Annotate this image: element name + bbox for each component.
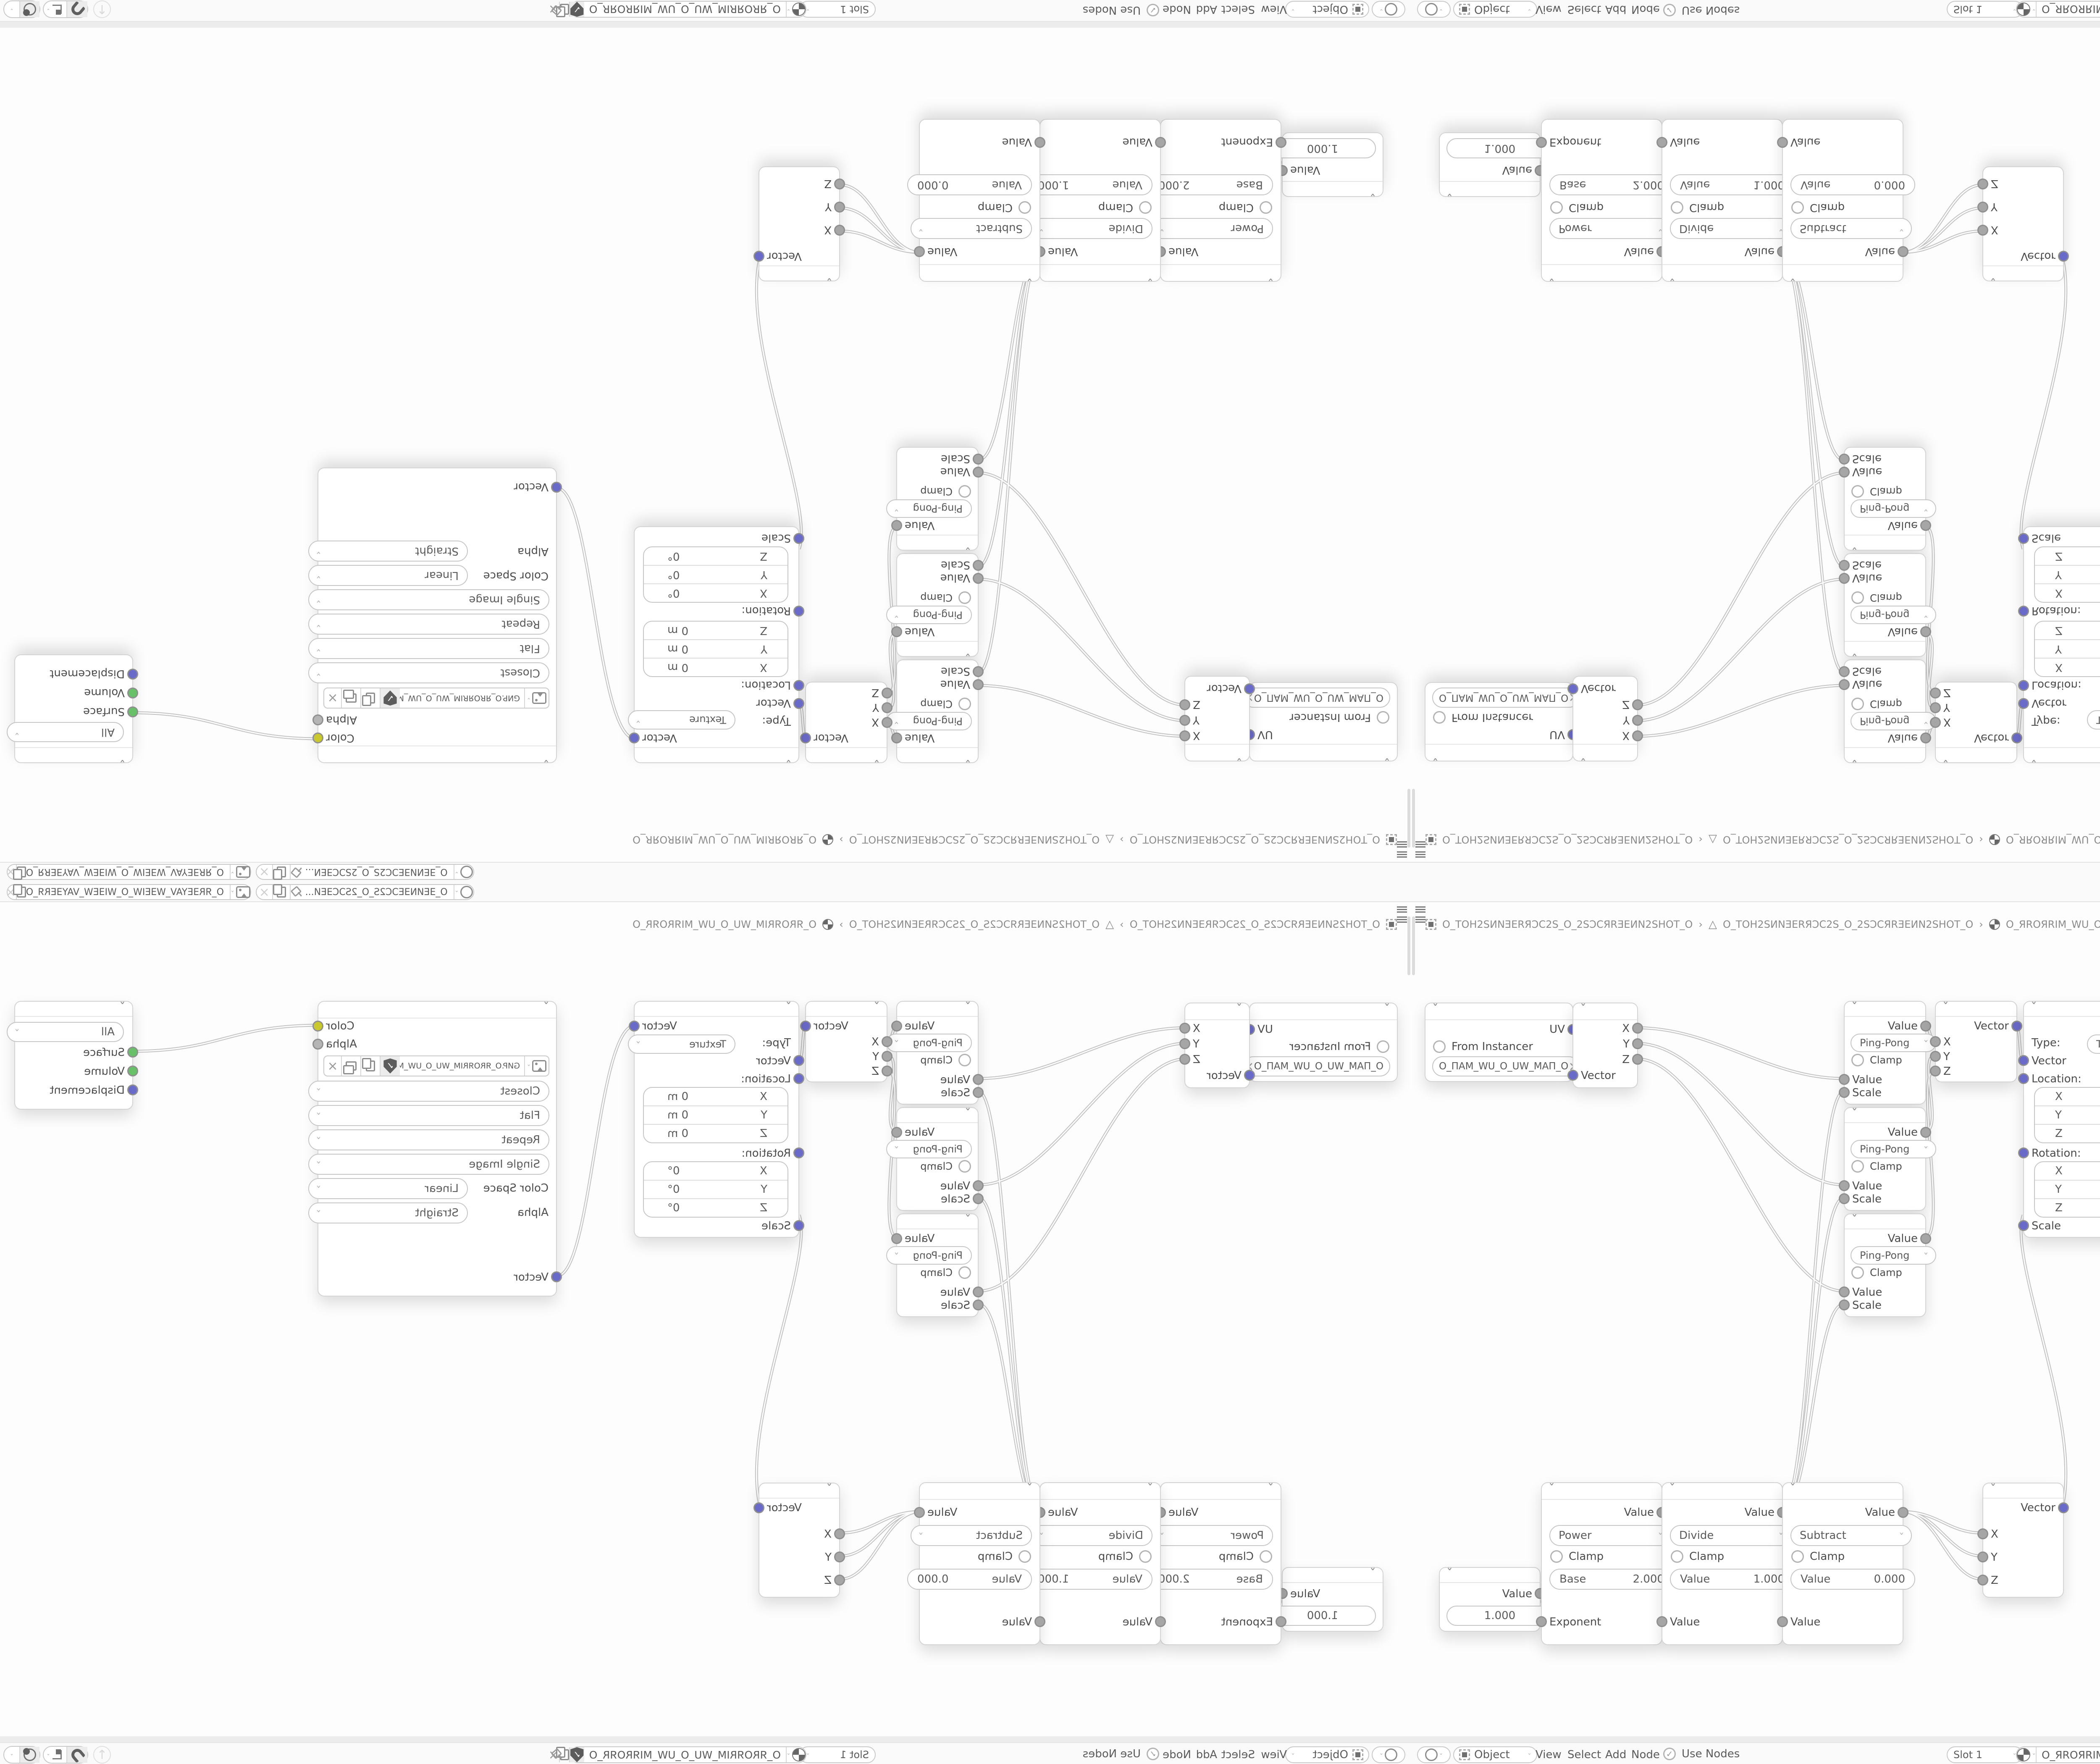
node-material-output[interactable]: ˇ Allˇ Surface Volume Displacement xyxy=(14,654,133,763)
y-input-socket[interactable] xyxy=(1977,202,1988,213)
node-editor-canvas[interactable]: O_TOH2SИNƎERЯƆC2S_O_2SƆCЯRƎEИN2SHOT_O › … xyxy=(1411,28,2100,862)
collapse-chevron[interactable]: ˇ xyxy=(874,754,880,758)
node-math-pingpong-3[interactable]: ˇ Value Ping-Pongˇ Clamp Value Scale xyxy=(1844,1213,1926,1317)
scale-input-socket[interactable] xyxy=(1839,666,1850,677)
collapse-chevron[interactable]: ˇ xyxy=(1432,752,1438,756)
view-layer-selector[interactable]: ˇ O_ЯRƎEYAV_WƎEIW_O_WIƎEW_VAYƎERЯ_O × xyxy=(7,884,251,900)
node-math-subtract[interactable]: ˇ Value Subtractˇ Clamp Value0.000 Value xyxy=(919,119,1040,282)
y-input-socket[interactable] xyxy=(882,1051,892,1062)
projection-dropdown[interactable]: Flatˇ xyxy=(308,638,549,659)
snap-controls[interactable]: ˇ xyxy=(43,0,88,18)
node-image-texture[interactable]: ˇ Color Alpha ˇ GИP.O_ЯROЯRIM_WU_O_UW_MI… xyxy=(318,467,557,763)
value-field[interactable]: Value0.000 xyxy=(1790,1569,1915,1590)
rotation-input-socket[interactable] xyxy=(793,606,804,617)
collapse-chevron[interactable]: ˇ xyxy=(1549,1487,1555,1491)
node-uv-map[interactable]: ˇ UV From Instancer O_ПAM_WU_O_UW_MAП_O … xyxy=(1425,682,1573,761)
node-combine-xyz-2[interactable]: ˇ Vector X Y Z xyxy=(1982,166,2064,281)
collapse-chevron[interactable]: ˇ xyxy=(1990,1488,1996,1492)
operation-dropdown[interactable]: Subtractˇ xyxy=(911,1525,1032,1546)
material-selector[interactable]: ˇ O_ЯROЯRIM_WU_O_UW_MIЯROЯR_O ✓ × xyxy=(2016,1,2100,18)
node-math-divide[interactable]: ˇ Value Divideˇ Clamp Value1.000 Value xyxy=(1662,119,1783,282)
snap-target-icon[interactable]: ˇ xyxy=(44,1747,66,1763)
go-to-parent-button[interactable]: ↑ xyxy=(93,0,111,18)
unpack-icon[interactable] xyxy=(341,688,360,708)
operation-dropdown[interactable]: Ping-Pongˇ xyxy=(1851,1034,1936,1052)
interpolation-dropdown[interactable]: Closestˇ xyxy=(308,1081,549,1102)
collapse-chevron[interactable]: ˇ xyxy=(1669,273,1675,277)
node-math-pingpong-1[interactable]: ˇ Value Ping-Pongˇ Clamp Value Scale xyxy=(1844,1001,1926,1105)
pivot-icon[interactable] xyxy=(19,1747,39,1763)
node-combine-xyz-2[interactable]: ˇ Vector X Y Z xyxy=(759,1483,840,1598)
z-input-socket[interactable] xyxy=(882,688,892,698)
value-input-socket[interactable] xyxy=(1656,137,1667,148)
clamp-checkbox[interactable]: Clamp xyxy=(1851,1266,1902,1279)
node-math-pingpong-1[interactable]: ˇ Value Ping-Pongˇ Clamp Value Scale xyxy=(1844,659,1926,763)
menu-node[interactable]: Node xyxy=(1163,3,1191,16)
location-input-socket[interactable] xyxy=(2018,1073,2029,1084)
vector-output-socket[interactable] xyxy=(2011,1021,2022,1032)
alpha-output-socket[interactable] xyxy=(312,1039,323,1050)
menu-select[interactable]: Select xyxy=(1567,1748,1601,1761)
node-math-pingpong-3[interactable]: ˇ Value Ping-Pongˇ Clamp Value Scale xyxy=(896,1213,979,1317)
clamp-checkbox[interactable]: Clamp xyxy=(920,1160,971,1173)
value-input-socket[interactable] xyxy=(1777,137,1788,148)
clamp-checkbox[interactable]: Clamp xyxy=(1098,1550,1152,1563)
node-math-subtract[interactable]: ˇ Value Subtractˇ Clamp Value0.000 Value xyxy=(919,1482,1040,1645)
scale-input-socket[interactable] xyxy=(973,1299,984,1310)
menu-node[interactable]: Node xyxy=(1163,1748,1191,1761)
collapse-chevron[interactable]: ˇ xyxy=(1268,1487,1274,1491)
node-mapping[interactable]: ˇ Vector Type: Textureˇ Vector Location:… xyxy=(634,1001,799,1238)
collapse-chevron[interactable]: ˇ xyxy=(1026,1487,1033,1491)
node-separate-xyz[interactable]: ˇ X Y Z Vector xyxy=(1572,1003,1638,1088)
snap-magnet-icon[interactable] xyxy=(66,1,87,17)
clamp-checkbox[interactable]: Clamp xyxy=(1851,698,1902,710)
vector-output-socket[interactable] xyxy=(629,732,640,743)
operation-dropdown[interactable]: Subtractˇ xyxy=(1790,1525,1912,1546)
from-instancer-checkbox[interactable]: From Instancer xyxy=(1289,1040,1389,1053)
copy-icon[interactable] xyxy=(16,865,26,879)
collapse-chevron[interactable]: ˇ xyxy=(1370,1572,1376,1576)
collapse-chevron[interactable]: ˇ xyxy=(965,1112,971,1116)
go-to-parent-button[interactable]: ↑ xyxy=(93,1746,111,1764)
image-icon[interactable]: ˇ xyxy=(230,865,250,879)
vector-input-socket[interactable] xyxy=(1567,1070,1578,1081)
y-input-socket[interactable] xyxy=(1977,1551,1988,1562)
x-input-socket[interactable] xyxy=(882,717,892,728)
value-output-socket[interactable] xyxy=(1920,732,1931,743)
value-output-socket[interactable] xyxy=(891,520,902,531)
rotation-fields[interactable]: X0° Y0° Z0° xyxy=(2034,546,2100,603)
collapse-chevron[interactable]: ˇ xyxy=(1236,752,1242,756)
collapse-chevron[interactable]: ˇ xyxy=(1942,1006,1949,1010)
collapse-chevron[interactable]: ˇ xyxy=(1549,273,1555,277)
shader-type-dropdown[interactable]: Object ˇ xyxy=(1453,1746,1537,1763)
x-input-socket[interactable] xyxy=(834,1528,845,1539)
clamp-checkbox[interactable]: Clamp xyxy=(1550,1550,1604,1563)
operation-dropdown[interactable]: Ping-Pongˇ xyxy=(1851,1140,1936,1158)
volume-input-socket[interactable] xyxy=(127,688,138,698)
value-output-socket[interactable] xyxy=(914,1507,925,1518)
menu-add[interactable]: Add xyxy=(1605,3,1626,16)
slot-dropdown[interactable]: Slot 1ˇ xyxy=(799,1,876,18)
from-instancer-checkbox[interactable]: From Instancer xyxy=(1289,711,1389,724)
operation-dropdown[interactable]: Ping-Pongˇ xyxy=(1851,712,1936,730)
collapse-chevron[interactable]: ˇ xyxy=(785,1006,792,1010)
close-icon[interactable]: × xyxy=(324,688,341,708)
value-output-socket[interactable] xyxy=(891,1127,902,1138)
clamp-checkbox[interactable]: Clamp xyxy=(1851,1054,1902,1066)
scale-input-socket[interactable] xyxy=(793,533,804,544)
clamp-checkbox[interactable]: Clamp xyxy=(1791,201,1845,214)
uv-map-select[interactable]: O_ПAM_WU_O_UW_MAП_O × xyxy=(1432,688,1579,708)
menu-select[interactable]: Select xyxy=(1221,3,1255,16)
value-output-socket[interactable] xyxy=(891,732,902,743)
node-math-pingpong-1[interactable]: ˇ Value Ping-Pongˇ Clamp Value Scale xyxy=(896,659,979,763)
close-icon[interactable]: × xyxy=(257,885,272,899)
snap-controls[interactable]: ˇ xyxy=(43,1746,88,1764)
rotation-fields[interactable]: X0° Y0° Z0° xyxy=(2034,1161,2100,1218)
fake-user-shield-icon[interactable]: ✓ xyxy=(380,1056,400,1076)
operation-dropdown[interactable]: Ping-Pongˇ xyxy=(1851,499,1936,518)
collapse-chevron[interactable]: ˇ xyxy=(1268,273,1274,277)
node-separate-xyz[interactable]: ˇ X Y Z Vector xyxy=(1572,676,1638,761)
x-input-socket[interactable] xyxy=(1930,1036,1941,1047)
copy-icon[interactable] xyxy=(16,885,26,899)
value-input-socket[interactable] xyxy=(1839,1286,1850,1297)
overlay-dropdown[interactable]: ˇ xyxy=(3,1746,40,1764)
clamp-checkbox[interactable]: Clamp xyxy=(1098,201,1152,214)
menu-select[interactable]: Select xyxy=(1221,1748,1255,1761)
y-output-socket[interactable] xyxy=(1179,1038,1190,1049)
y-input-socket[interactable] xyxy=(882,702,892,713)
new-copy-icon[interactable] xyxy=(360,688,380,708)
node-mapping[interactable]: ˇ Vector Type: Textureˇ Vector Location:… xyxy=(2023,526,2100,763)
scene-icon[interactable]: ˇ xyxy=(454,885,473,899)
view-layer-name[interactable]: O_ЯRƎEYAV_WƎEIW_O_WIƎEW_VAYƎERЯ_O xyxy=(26,887,230,898)
node-math-pingpong-2[interactable]: ˇ Value Ping-Pongˇ Clamp Value Scale xyxy=(1844,553,1926,657)
menu-view[interactable]: View xyxy=(1536,3,1562,16)
operation-dropdown[interactable]: Ping-Pongˇ xyxy=(886,606,972,624)
collapse-chevron[interactable]: ˇ xyxy=(965,648,971,652)
collapse-chevron[interactable]: ˇ xyxy=(1790,1487,1796,1491)
value-input-socket[interactable] xyxy=(973,573,984,584)
location-fields[interactable]: X0 m Y0 m Z0 m xyxy=(643,1087,788,1143)
node-editor-canvas[interactable]: O_TOH2SИNƎERЯƆC2S_O_2SƆCЯRƎEИN2SHOT_O › … xyxy=(0,28,1411,862)
mapping-type-dropdown[interactable]: Textureˇ xyxy=(628,1034,735,1054)
operation-dropdown[interactable]: Ping-Pongˇ xyxy=(886,499,972,518)
scale-input-socket[interactable] xyxy=(2018,533,2029,544)
alpha-output-socket[interactable] xyxy=(312,714,323,725)
y-output-socket[interactable] xyxy=(1632,1038,1643,1049)
node-math-subtract[interactable]: ˇ Value Subtractˇ Clamp Value0.000 Value xyxy=(1782,119,1903,282)
value-output-socket[interactable] xyxy=(891,626,902,637)
scene-selector[interactable]: ˇ O_ƎEИNƎEƆC2S_O_2SƆCƎEИ... × xyxy=(256,864,474,880)
node-combine-xyz-2[interactable]: ˇ Vector X Y Z xyxy=(759,166,840,281)
value-output-socket[interactable] xyxy=(1898,1507,1908,1518)
shader-type-dropdown[interactable]: Object ˇ xyxy=(1285,1,1369,18)
collapse-chevron[interactable]: ˇ xyxy=(543,754,549,758)
value-input-socket[interactable] xyxy=(1839,467,1850,478)
menu-node[interactable]: Node xyxy=(1631,1748,1660,1761)
value-input-socket[interactable] xyxy=(1839,1180,1850,1191)
collapse-chevron[interactable]: ˇ xyxy=(1384,752,1390,756)
node-math-pingpong-1[interactable]: ˇ Value Ping-Pongˇ Clamp Value Scale xyxy=(896,1001,979,1105)
value-output-socket[interactable] xyxy=(914,246,925,257)
operation-dropdown[interactable]: Divideˇ xyxy=(1670,1525,1791,1546)
editor-type-button[interactable]: ˇ xyxy=(1372,1746,1405,1763)
node-value[interactable]: ˇ Value 1.000 xyxy=(1282,132,1383,197)
value-output-socket[interactable] xyxy=(891,1233,902,1244)
y-input-socket[interactable] xyxy=(1930,702,1941,713)
value-field[interactable]: Value1.000 xyxy=(1670,1569,1795,1590)
collapse-chevron[interactable]: ˇ xyxy=(1446,1572,1453,1576)
vector-input-socket[interactable] xyxy=(1244,1070,1255,1081)
scale-input-socket[interactable] xyxy=(2018,1220,2029,1231)
extension-dropdown[interactable]: Repeatˇ xyxy=(308,614,549,635)
node-separate-xyz[interactable]: ˇ X Y Z Vector xyxy=(1184,676,1250,761)
material-selector[interactable]: ˇ O_ЯROЯRIM_WU_O_UW_MIЯROЯR_O ✓ × xyxy=(570,1,806,18)
clamp-checkbox[interactable]: Clamp xyxy=(978,1550,1031,1563)
collapse-chevron[interactable]: ˇ xyxy=(2031,1006,2037,1010)
location-fields[interactable]: X0 m Y0 m Z0 m xyxy=(643,621,788,677)
value-field[interactable]: Value0.000 xyxy=(907,174,1032,195)
collapse-chevron[interactable]: ˇ xyxy=(119,754,126,758)
collapse-chevron[interactable]: ˇ xyxy=(1580,1008,1586,1012)
value-input-socket[interactable] xyxy=(1034,137,1045,148)
rotation-fields[interactable]: X0° Y0° Z0° xyxy=(643,1161,788,1218)
image-icon[interactable]: ˇ xyxy=(524,1056,549,1076)
scale-input-socket[interactable] xyxy=(973,1193,984,1204)
y-output-socket[interactable] xyxy=(1179,715,1190,726)
node-math-power[interactable]: ˇ Value Powerˇ Clamp Base2.000 Exponent xyxy=(1541,1482,1662,1645)
exponent-input-socket[interactable] xyxy=(1276,137,1286,148)
menu-view[interactable]: View xyxy=(1536,1748,1562,1761)
node-math-pingpong-2[interactable]: ˇ Value Ping-Pongˇ Clamp Value Scale xyxy=(1844,1107,1926,1211)
collapse-chevron[interactable]: ˇ xyxy=(1942,754,1949,758)
node-editor-canvas[interactable]: O_TOH2SИNƎERЯƆC2S_O_2SƆCЯRƎEИN2SHOT_O › … xyxy=(0,902,1411,1736)
z-input-socket[interactable] xyxy=(834,178,845,189)
collapse-chevron[interactable]: ˇ xyxy=(1851,541,1858,546)
scale-input-socket[interactable] xyxy=(973,666,984,677)
vector-output-socket[interactable] xyxy=(629,1021,640,1032)
scale-input-socket[interactable] xyxy=(1839,560,1850,571)
collapse-chevron[interactable]: ˇ xyxy=(543,1006,549,1010)
node-editor-canvas[interactable]: O_TOH2SИNƎERЯƆC2S_O_2SƆCЯRƎEИN2SHOT_O › … xyxy=(1411,902,2100,1736)
x-input-socket[interactable] xyxy=(1977,1528,1988,1539)
node-image-texture[interactable]: ˇ Color Alpha ˇ GИP.O_ЯROЯRIM_WU_O_UW_MI… xyxy=(318,1001,557,1297)
collapse-chevron[interactable]: ˇ xyxy=(1384,1008,1390,1012)
x-input-socket[interactable] xyxy=(1977,225,1988,236)
node-math-power[interactable]: ˇ Value Powerˇ Clamp Base2.000 Exponent xyxy=(1160,119,1281,282)
rotation-input-socket[interactable] xyxy=(793,1147,804,1158)
x-input-socket[interactable] xyxy=(1930,717,1941,728)
projection-dropdown[interactable]: Flatˇ xyxy=(308,1105,549,1126)
extension-dropdown[interactable]: Repeatˇ xyxy=(308,1129,549,1150)
menu-view[interactable]: View xyxy=(1261,3,1287,16)
clamp-checkbox[interactable]: Clamp xyxy=(1671,201,1724,214)
from-instancer-checkbox[interactable]: From Instancer xyxy=(1433,711,1533,724)
z-output-socket[interactable] xyxy=(1179,699,1190,710)
operation-dropdown[interactable]: Ping-Pongˇ xyxy=(1851,1246,1936,1265)
z-input-socket[interactable] xyxy=(1977,178,1988,189)
node-math-power[interactable]: ˇ Value Powerˇ Clamp Base2.000 Exponent xyxy=(1160,1482,1281,1645)
clamp-checkbox[interactable]: Clamp xyxy=(1671,1550,1724,1563)
use-nodes-checkbox[interactable]: ✓Use Nodes xyxy=(1663,1748,1740,1760)
uv-map-select[interactable]: O_ПAM_WU_O_UW_MAП_O × xyxy=(1432,1056,1579,1076)
y-output-socket[interactable] xyxy=(1632,715,1643,726)
material-icon[interactable]: ˇ xyxy=(2017,1747,2037,1762)
overlay-dropdown[interactable]: ˇ xyxy=(3,0,40,18)
value-output-socket[interactable] xyxy=(1920,1233,1931,1244)
operation-dropdown[interactable]: Powerˇ xyxy=(1549,1525,1671,1546)
menu-view[interactable]: View xyxy=(1261,1748,1287,1761)
rotation-fields[interactable]: X0° Y0° Z0° xyxy=(643,546,788,603)
collapse-chevron[interactable]: ˇ xyxy=(1236,1008,1242,1012)
node-math-power[interactable]: ˇ Value Powerˇ Clamp Base2.000 Exponent xyxy=(1541,119,1662,282)
x-input-socket[interactable] xyxy=(882,1036,892,1047)
scene-icon[interactable]: ˇ xyxy=(454,865,473,879)
clamp-checkbox[interactable]: Clamp xyxy=(1219,1550,1272,1563)
image-icon[interactable]: ˇ xyxy=(230,885,250,899)
rotation-input-socket[interactable] xyxy=(2018,1147,2029,1158)
operation-dropdown[interactable]: Ping-Pongˇ xyxy=(886,1034,972,1052)
view-layer-name[interactable]: O_ЯRƎEYAV_WƎEIW_O_WIƎEW_VAYƎERЯ_O xyxy=(26,867,230,877)
value-field[interactable]: Value0.000 xyxy=(1790,174,1915,195)
menu-select[interactable]: Select xyxy=(1567,3,1601,16)
z-input-socket[interactable] xyxy=(1930,688,1941,698)
pin-icon[interactable] xyxy=(290,865,305,879)
collapse-chevron[interactable]: ˇ xyxy=(965,754,971,758)
operation-dropdown[interactable]: Powerˇ xyxy=(1152,1525,1273,1546)
operation-dropdown[interactable]: Powerˇ xyxy=(1549,218,1671,239)
z-output-socket[interactable] xyxy=(1632,1054,1643,1065)
from-instancer-checkbox[interactable]: From Instancer xyxy=(1433,1040,1533,1053)
value-output-socket[interactable] xyxy=(1920,1021,1931,1032)
operation-dropdown[interactable]: Ping-Pongˇ xyxy=(886,712,972,730)
horizontal-scrollbar[interactable] xyxy=(0,1736,1411,1742)
operation-dropdown[interactable]: Ping-Pongˇ xyxy=(886,1140,972,1158)
value-input-socket[interactable] xyxy=(1777,1616,1788,1627)
surface-input-socket[interactable] xyxy=(127,706,138,717)
value-input-socket[interactable] xyxy=(973,1286,984,1297)
target-dropdown[interactable]: Allˇ xyxy=(7,722,124,742)
z-output-socket[interactable] xyxy=(1632,699,1643,710)
value-output-socket[interactable] xyxy=(1920,1127,1931,1138)
node-math-pingpong-3[interactable]: ˇ Value Ping-Pongˇ Clamp Value Scale xyxy=(896,447,979,551)
collapse-chevron[interactable]: ˇ xyxy=(1026,273,1033,277)
value-input-socket[interactable] xyxy=(973,467,984,478)
node-math-pingpong-2[interactable]: ˇ Value Ping-Pongˇ Clamp Value Scale xyxy=(896,553,979,657)
shader-type-dropdown[interactable]: Object ˇ xyxy=(1453,1,1537,18)
collapse-chevron[interactable]: ˇ xyxy=(965,1006,971,1010)
target-dropdown[interactable]: Allˇ xyxy=(7,1022,124,1042)
use-nodes-checkbox[interactable]: ✓Use Nodes xyxy=(1083,4,1159,16)
scale-input-socket[interactable] xyxy=(793,1220,804,1231)
clamp-checkbox[interactable]: Clamp xyxy=(920,1266,971,1279)
value-output-socket[interactable] xyxy=(1898,246,1908,257)
node-uv-map[interactable]: ˇ UV From Instancer O_ПAM_WU_O_UW_MAП_O … xyxy=(1425,1003,1573,1082)
operation-dropdown[interactable]: Subtractˇ xyxy=(1790,218,1912,239)
node-math-pingpong-3[interactable]: ˇ Value Ping-Pongˇ Clamp Value Scale xyxy=(1844,447,1926,551)
fake-user-shield-icon[interactable]: ✓ xyxy=(380,688,400,708)
location-fields[interactable]: X0 m Y0 m Z0 m xyxy=(2034,621,2100,677)
vector-output-socket[interactable] xyxy=(753,251,764,262)
vector-input-socket[interactable] xyxy=(793,698,804,709)
use-nodes-checkbox[interactable]: ✓Use Nodes xyxy=(1083,1748,1159,1760)
alpha-mode-dropdown[interactable]: Straightˇ xyxy=(308,541,468,562)
horizontal-scrollbar[interactable] xyxy=(1411,1736,2100,1742)
value-input-socket[interactable] xyxy=(1155,137,1166,148)
base-field[interactable]: Base2.000 xyxy=(1148,1569,1273,1590)
clamp-checkbox[interactable]: Clamp xyxy=(920,485,971,498)
scale-input-socket[interactable] xyxy=(973,454,984,465)
copy-icon[interactable] xyxy=(272,885,290,899)
clamp-checkbox[interactable]: Clamp xyxy=(1851,591,1902,604)
vector-input-socket[interactable] xyxy=(2018,698,2029,709)
unpack-icon[interactable] xyxy=(341,1056,360,1076)
image-datablock-row[interactable]: ˇ GИP.O_ЯROЯRIM_WU_O_UW_MIЯROЯR_O.PNG ✓ … xyxy=(323,1055,549,1076)
value-output-socket[interactable] xyxy=(1920,626,1931,637)
scale-input-socket[interactable] xyxy=(1839,1193,1850,1204)
node-math-subtract[interactable]: ˇ Value Subtractˇ Clamp Value0.000 Value xyxy=(1782,1482,1903,1645)
vector-output-socket[interactable] xyxy=(2058,251,2069,262)
snap-target-icon[interactable]: ˇ xyxy=(44,1,66,17)
slot-dropdown[interactable]: Slot 1ˇ xyxy=(1947,1,2023,18)
collapse-chevron[interactable]: ˇ xyxy=(1669,1487,1675,1491)
node-math-divide[interactable]: ˇ Value Divideˇ Clamp Value1.000 Value xyxy=(1039,119,1161,282)
collapse-chevron[interactable]: ˇ xyxy=(1432,1008,1438,1012)
node-mapping[interactable]: ˇ Vector Type: Textureˇ Vector Location:… xyxy=(2023,1001,2100,1238)
x-input-socket[interactable] xyxy=(834,225,845,236)
collapse-chevron[interactable]: ˇ xyxy=(826,1488,832,1492)
location-input-socket[interactable] xyxy=(2018,680,2029,691)
value-field[interactable]: Value0.000 xyxy=(907,1569,1032,1590)
collapse-chevron[interactable]: ˇ xyxy=(1147,1487,1153,1491)
menu-node[interactable]: Node xyxy=(1631,3,1660,16)
node-mapping[interactable]: ˇ Vector Type: Textureˇ Vector Location:… xyxy=(634,526,799,763)
uv-map-select[interactable]: O_ПAM_WU_O_UW_MAП_O × xyxy=(1243,688,1390,708)
node-separate-xyz[interactable]: ˇ X Y Z Vector xyxy=(1184,1003,1250,1088)
y-input-socket[interactable] xyxy=(834,1551,845,1562)
material-selector[interactable]: ˇ O_ЯROЯRIM_WU_O_UW_MIЯROЯR_O ✓ × xyxy=(2016,1746,2100,1763)
value-input-socket[interactable] xyxy=(1155,1616,1166,1627)
operation-dropdown[interactable]: Powerˇ xyxy=(1152,218,1273,239)
collapse-chevron[interactable]: ˇ xyxy=(1851,754,1858,758)
x-output-socket[interactable] xyxy=(1179,730,1190,741)
new-copy-icon[interactable] xyxy=(360,1056,380,1076)
exponent-input-socket[interactable] xyxy=(1536,137,1547,148)
z-input-socket[interactable] xyxy=(834,1575,845,1585)
image-icon[interactable]: ˇ xyxy=(524,688,549,708)
chevron-down-icon[interactable]: ˇ xyxy=(4,1747,19,1763)
close-icon[interactable]: × xyxy=(324,1056,341,1076)
location-fields[interactable]: X0 m Y0 m Z0 m xyxy=(2034,1087,2100,1143)
displacement-input-socket[interactable] xyxy=(127,669,138,680)
vector-output-socket[interactable] xyxy=(800,732,811,743)
node-value[interactable]: ˇ Value 1.000 xyxy=(1439,1567,1541,1632)
alpha-mode-dropdown[interactable]: Straightˇ xyxy=(308,1202,468,1223)
operation-dropdown[interactable]: Divideˇ xyxy=(1031,1525,1152,1546)
value-input-socket[interactable] xyxy=(1839,679,1850,690)
use-nodes-checkbox[interactable]: ✓Use Nodes xyxy=(1663,4,1740,16)
operation-dropdown[interactable]: Ping-Pongˇ xyxy=(1851,606,1936,624)
operation-dropdown[interactable]: Ping-Pongˇ xyxy=(886,1246,972,1265)
close-icon[interactable]: × xyxy=(257,865,272,879)
image-datablock-row[interactable]: ˇ GИP.O_ЯROЯRIM_WU_O_UW_MIЯROЯR_O.PNG ✓ … xyxy=(323,688,549,709)
horizontal-scrollbar[interactable] xyxy=(1411,22,2100,28)
view-layer-selector[interactable]: ˇ O_ЯRƎEYAV_WƎEIW_O_WIƎEW_VAYƎERЯ_O × xyxy=(7,864,251,880)
